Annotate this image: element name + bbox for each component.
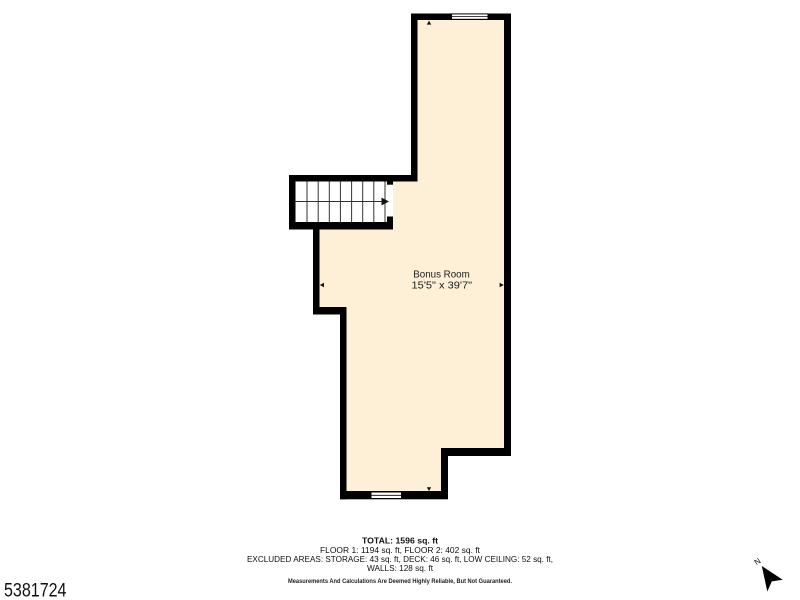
- svg-text:Measurements And Calculations: Measurements And Calculations Are Deemed…: [288, 578, 512, 585]
- svg-text:N: N: [753, 556, 763, 567]
- svg-text:WALLS: 128 sq. ft: WALLS: 128 sq. ft: [367, 563, 434, 573]
- svg-text:15'5" x 39'7": 15'5" x 39'7": [412, 281, 473, 292]
- svg-text:Bonus Room: Bonus Room: [413, 270, 470, 281]
- svg-text:5381724: 5381724: [4, 581, 67, 600]
